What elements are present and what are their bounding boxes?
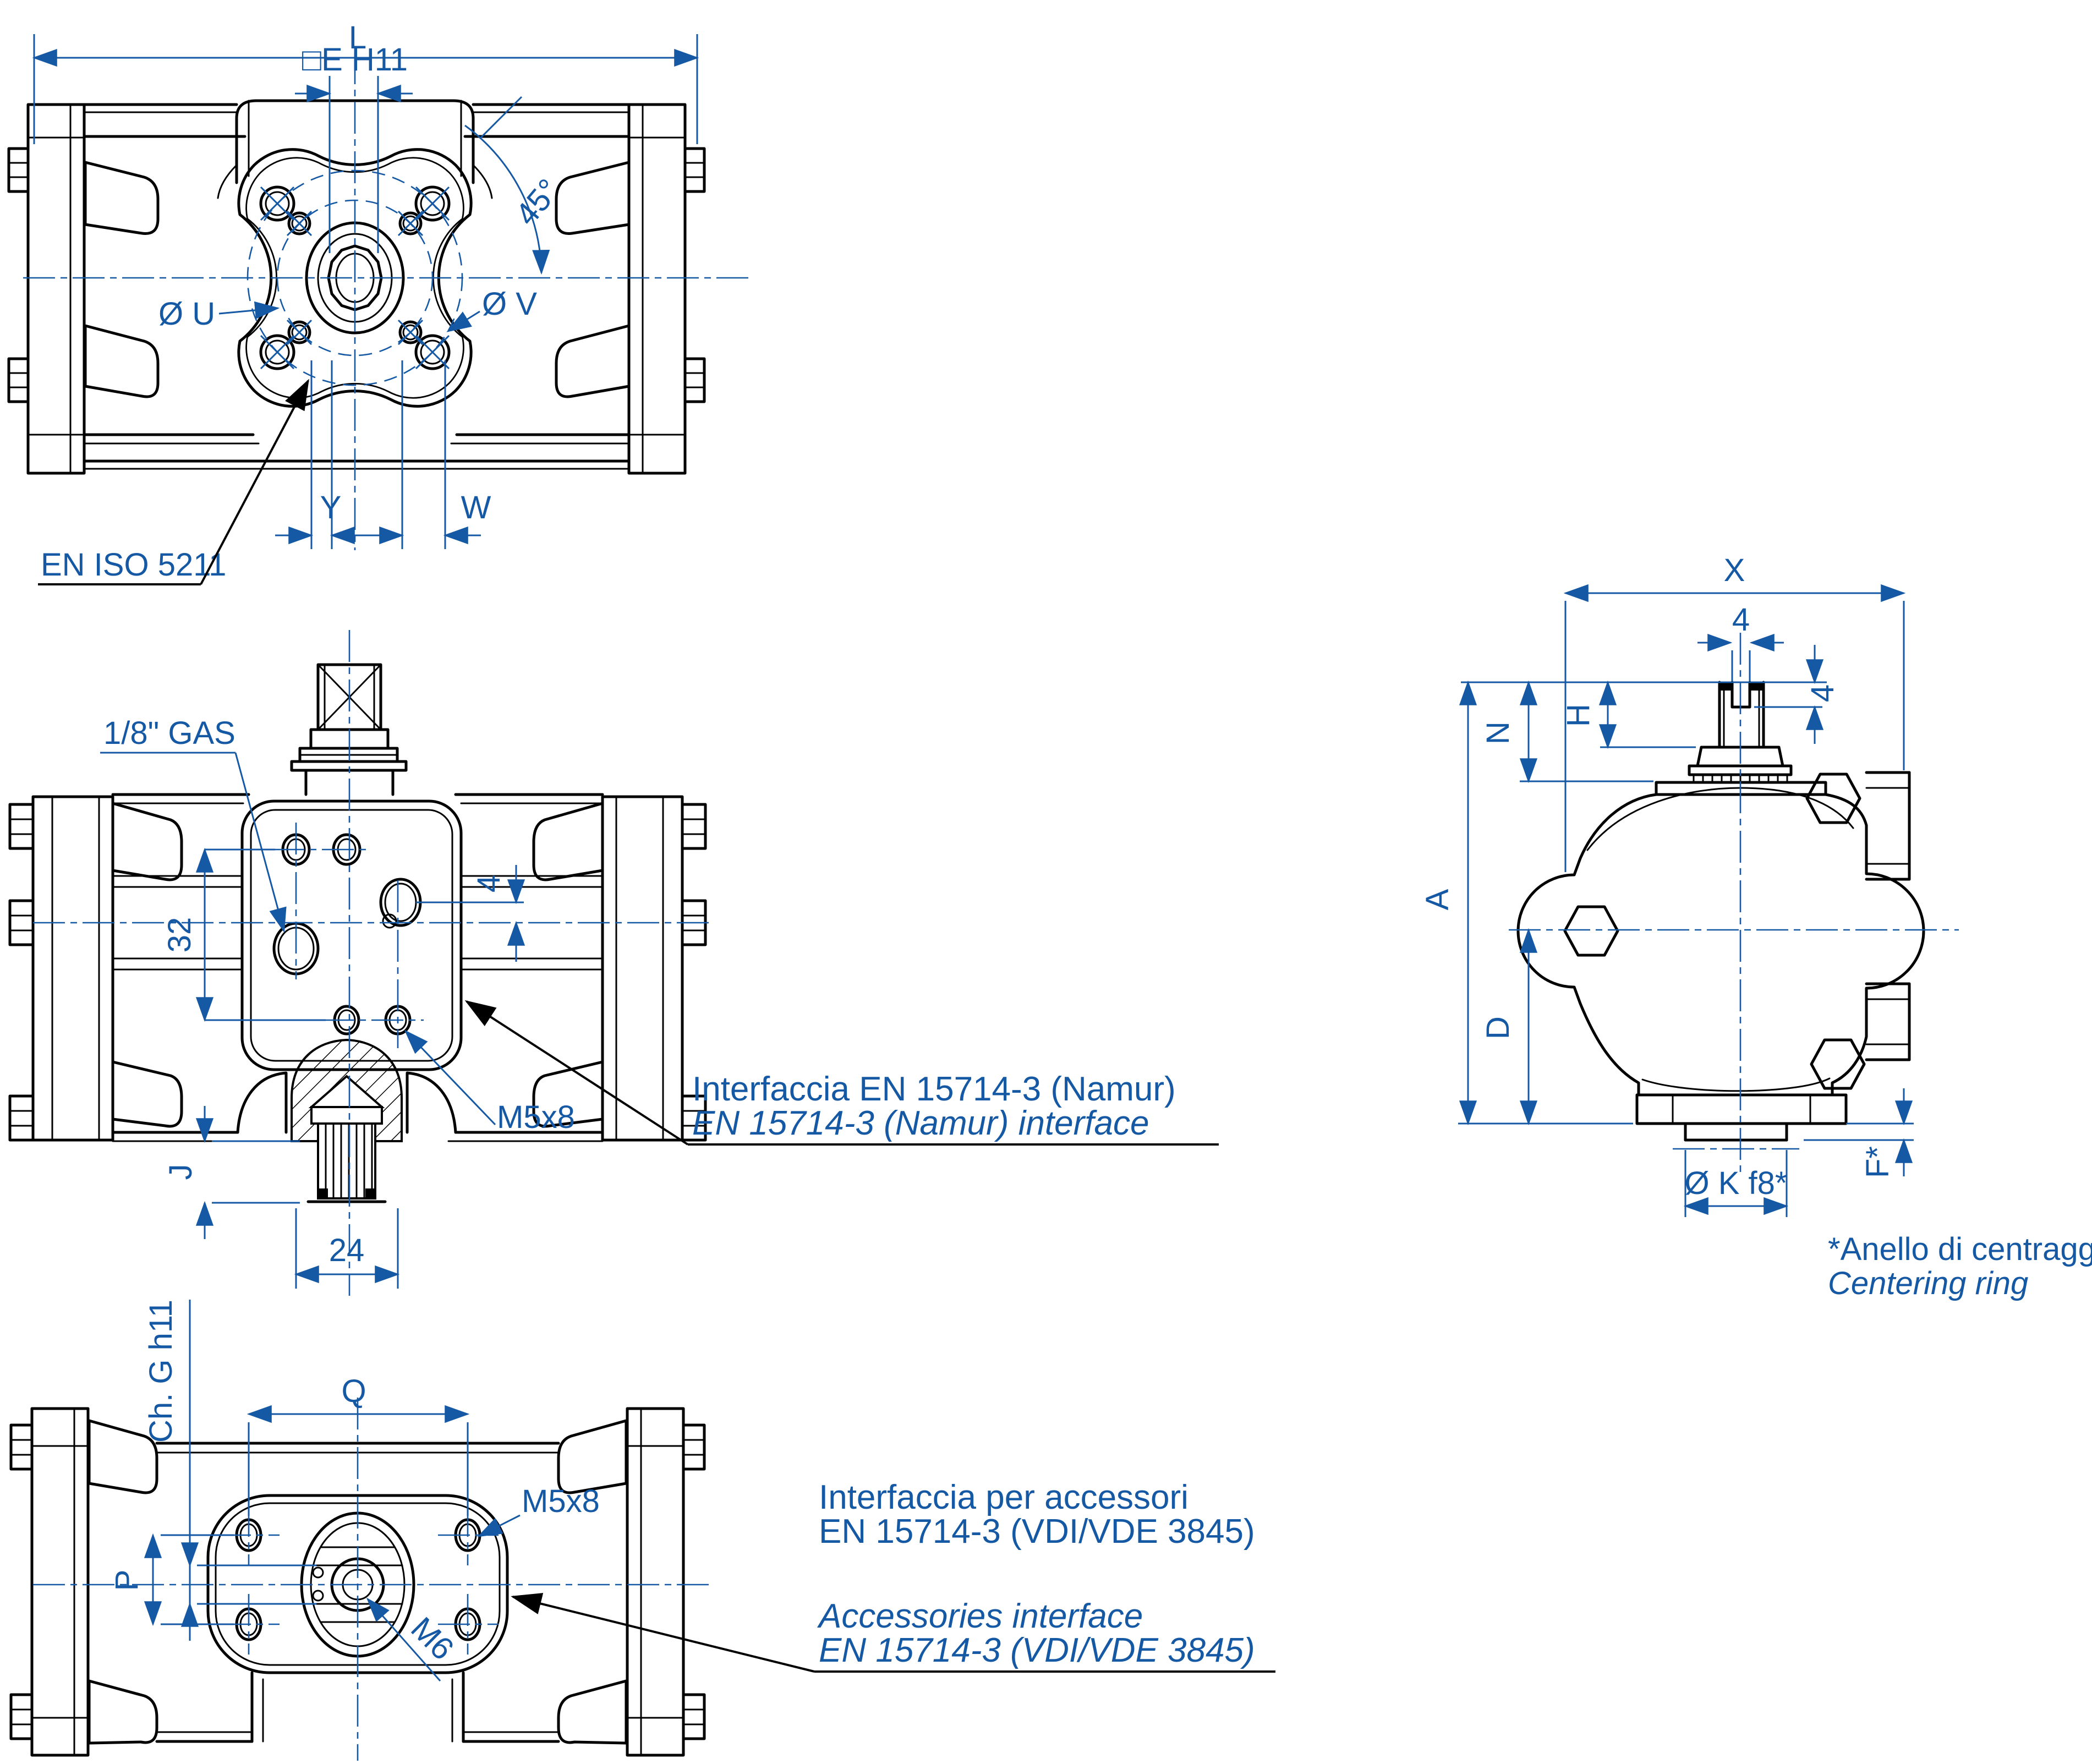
air-port-label: 1/8" GAS xyxy=(103,715,236,751)
side-view: X 4 4 H N A D xyxy=(1420,552,2092,1301)
namur-note-en: EN 15714-3 (Namur) interface xyxy=(692,1104,1149,1142)
technical-drawing-page: L □E H11 45° Ø U Ø V Y W EN ISO 5211 xyxy=(0,0,2092,1764)
dim-label-32: 32 xyxy=(162,917,198,953)
dim-label-J: J xyxy=(163,1164,199,1180)
bottom-view-dimensions: Ch. G h11 Q P M5x8 M6 Interfaccia per ac… xyxy=(109,1300,1275,1681)
air-plug xyxy=(238,1040,456,1202)
dim-label-F: F* xyxy=(1860,1146,1896,1178)
side-flange-plate xyxy=(1866,773,1909,1060)
dim-label-chamfer: Ch. G h11 xyxy=(143,1300,179,1443)
centering-ring-note-en: Centering ring xyxy=(1828,1266,2028,1301)
dim-label-D: D xyxy=(1480,1016,1516,1039)
dim-label-U: Ø U xyxy=(158,296,215,332)
dim-label-Y: Y xyxy=(320,490,342,525)
accessories-note-en-2: EN 15714-3 (VDI/VDE 3845) xyxy=(819,1631,1255,1669)
namur-note-it: Interfaccia EN 15714-3 (Namur) xyxy=(692,1070,1176,1108)
accessories-note-it-1: Interfaccia per accessori xyxy=(819,1478,1189,1516)
dim-label-slot-width: 4 xyxy=(1732,602,1750,638)
dim-label-X: X xyxy=(1724,552,1745,588)
hex-bolt xyxy=(1565,774,1864,1088)
dim-label-H: H xyxy=(1560,704,1596,727)
dim-label-A: A xyxy=(1420,889,1455,910)
dim-label-E: □E H11 xyxy=(302,42,408,78)
namur-plate xyxy=(242,801,461,1070)
top-view: 1/8" GAS 32 4 J 24 M5x8 Interfa xyxy=(10,630,1219,1296)
thread-label-m5x8: M5x8 xyxy=(497,1099,575,1135)
accessories-note-en-1: Accessories interface xyxy=(817,1597,1143,1635)
bolt-head xyxy=(9,149,704,402)
dim-label-45: 45° xyxy=(508,172,567,232)
dim-label-24: 24 xyxy=(329,1232,365,1268)
dim-label-P: P xyxy=(109,1570,145,1591)
front-view: L □E H11 45° Ø U Ø V Y W EN ISO 5211 xyxy=(9,20,748,584)
drawing-canvas: L □E H11 45° Ø U Ø V Y W EN ISO 5211 xyxy=(0,0,2092,1764)
dim-label-N: N xyxy=(1480,721,1516,744)
dim-label-slot-depth: 4 xyxy=(1805,684,1841,702)
thread-label-m5x8-bottom: M5x8 xyxy=(522,1483,600,1519)
bottom-view: Ch. G h11 Q P M5x8 M6 Interfaccia per ac… xyxy=(11,1300,1275,1761)
dim-label-W: W xyxy=(461,490,491,525)
accessories-note-it-2: EN 15714-3 (VDI/VDE 3845) xyxy=(819,1513,1255,1551)
dim-label-Q: Q xyxy=(341,1373,366,1409)
dim-label-K: Ø K f8* xyxy=(1685,1165,1788,1201)
thread-label-m6: M6 xyxy=(404,1610,461,1667)
side-view-dimensions: X 4 4 H N A D xyxy=(1420,552,2092,1301)
centering-ring-note-it: *Anello di centraggio xyxy=(1828,1231,2092,1267)
flange-standard-label: EN ISO 5211 xyxy=(41,547,226,583)
dim-label-V: Ø V xyxy=(482,286,537,322)
dim-label-4: 4 xyxy=(471,875,507,892)
